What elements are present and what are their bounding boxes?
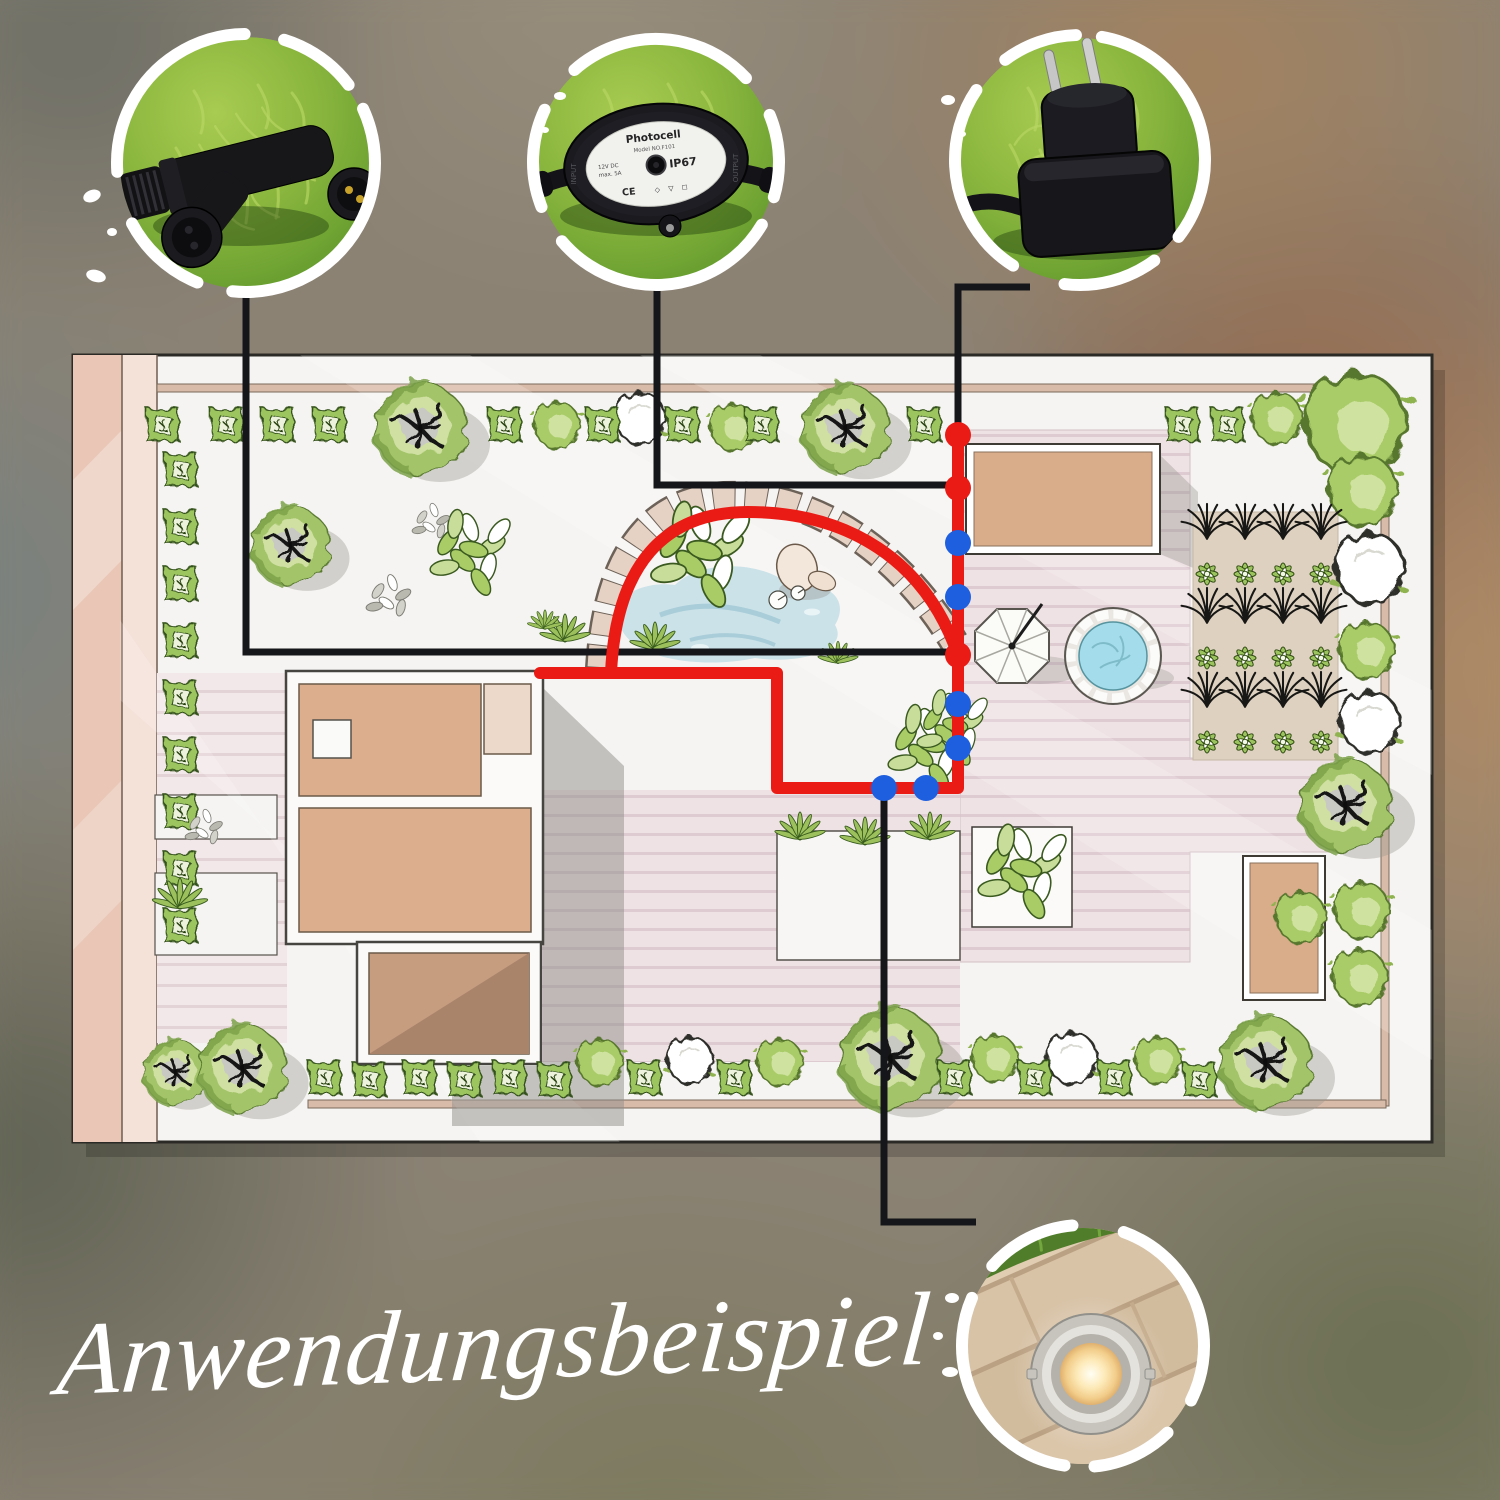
sqbush-plant	[404, 1062, 436, 1094]
sqbush-plant	[309, 1062, 341, 1094]
sqbush-plant	[1184, 1064, 1216, 1096]
sqbush-plant	[165, 625, 197, 657]
paint-splatter	[81, 187, 117, 284]
outdoor-table-top	[966, 444, 1198, 570]
flower-plant	[1234, 647, 1256, 669]
patio-slab	[777, 831, 960, 960]
sqbush-plant	[165, 511, 197, 543]
sqbush-plant	[165, 910, 197, 942]
callout-t-connector	[75, 0, 418, 334]
flower-plant	[1196, 563, 1218, 585]
raised-garden-bed	[1193, 512, 1338, 760]
sqbush-plant	[909, 409, 941, 441]
sqbush-plant	[165, 739, 197, 771]
left-wall	[73, 355, 157, 1142]
flower-plant	[1196, 731, 1218, 753]
sqbush-plant	[939, 1062, 971, 1094]
tree-plant	[1299, 759, 1391, 851]
skylight	[313, 720, 351, 758]
sqbush-plant	[1212, 409, 1244, 441]
flower-plant	[1310, 731, 1332, 753]
marketing-image: INPUT OUTPUT Photocell Model NO.F101 12V…	[0, 0, 1500, 1500]
light-dot	[945, 530, 971, 556]
sqbush-plant	[1167, 409, 1199, 441]
tree-plant	[1219, 1016, 1311, 1108]
light-dot	[871, 775, 897, 801]
sqbush-plant	[165, 454, 197, 486]
sqbush-plant	[262, 409, 294, 441]
light-dot	[945, 691, 971, 717]
light-dot	[945, 735, 971, 761]
junction-dot	[945, 642, 971, 668]
recessed-light	[1013, 1296, 1169, 1452]
sqbush-plant	[354, 1064, 386, 1096]
tree-plant	[839, 1007, 940, 1108]
flower-plant	[1272, 563, 1294, 585]
flower-plant	[1196, 647, 1218, 669]
flower-plant	[1272, 647, 1294, 669]
sqbush-plant	[165, 568, 197, 600]
sqbush-plant	[1099, 1062, 1131, 1094]
house-entry	[484, 684, 531, 754]
sqbush-plant	[539, 1064, 571, 1096]
sqbush-plant	[147, 409, 179, 441]
photocell-output-label: OUTPUT	[732, 153, 740, 182]
flower-plant	[1234, 563, 1256, 585]
tree-plant	[374, 382, 466, 474]
tree-plant	[801, 384, 888, 471]
sqbush-plant	[719, 1062, 751, 1094]
tree-plant	[198, 1024, 285, 1111]
sqbush-plant	[494, 1062, 526, 1094]
flower-plant	[1310, 647, 1332, 669]
sqbush-plant	[746, 409, 778, 441]
junction-dot	[945, 422, 971, 448]
flower-plant	[1234, 731, 1256, 753]
callout-photocell: INPUT OUTPUT Photocell Model NO.F101 12V…	[498, 4, 813, 319]
paint-splatter	[933, 1293, 959, 1377]
house-room	[299, 808, 531, 932]
tree-plant	[251, 506, 329, 584]
sqbush-plant	[165, 682, 197, 714]
flower-plant	[1310, 563, 1332, 585]
sqbush-plant	[489, 409, 521, 441]
light-dot	[913, 775, 939, 801]
sqbush-plant	[1019, 1062, 1051, 1094]
tree-plant	[143, 1040, 207, 1104]
flower-plant	[1272, 731, 1294, 753]
garden-plan	[73, 355, 1445, 1157]
junction-dot	[945, 475, 971, 501]
sqbush-plant	[211, 409, 243, 441]
sqbush-plant	[449, 1064, 481, 1096]
sqbush-plant	[629, 1062, 661, 1094]
sqbush-plant	[587, 409, 619, 441]
sqbush-plant	[667, 409, 699, 441]
photocell-input-label: INPUT	[570, 163, 578, 185]
light-dot	[945, 584, 971, 610]
sqbush-plant	[314, 409, 346, 441]
ce-mark-icon: CE	[622, 186, 637, 198]
